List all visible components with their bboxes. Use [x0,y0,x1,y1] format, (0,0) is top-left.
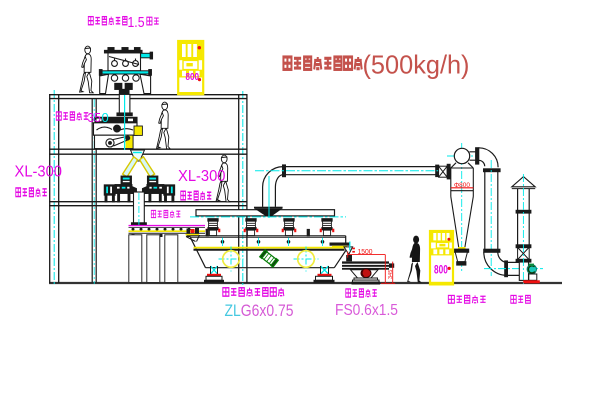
svg-text:1500: 1500 [358,247,373,256]
svg-text:800: 800 [186,72,200,83]
svg-text:(500kg/h): (500kg/h) [363,50,470,80]
svg-text:0: 0 [102,110,109,125]
svg-text:35: 35 [88,110,102,125]
svg-text:XL-300: XL-300 [178,168,226,185]
svg-text:XL-300: XL-300 [15,164,63,181]
svg-text:ZLG6x0.75: ZLG6x0.75 [225,302,294,320]
svg-text:Φ800: Φ800 [454,182,470,189]
svg-text:1.5: 1.5 [128,14,145,31]
svg-text:800: 800 [434,265,448,277]
svg-text:345: 345 [388,270,394,279]
svg-text:FS0.6x1.5: FS0.6x1.5 [335,302,398,319]
